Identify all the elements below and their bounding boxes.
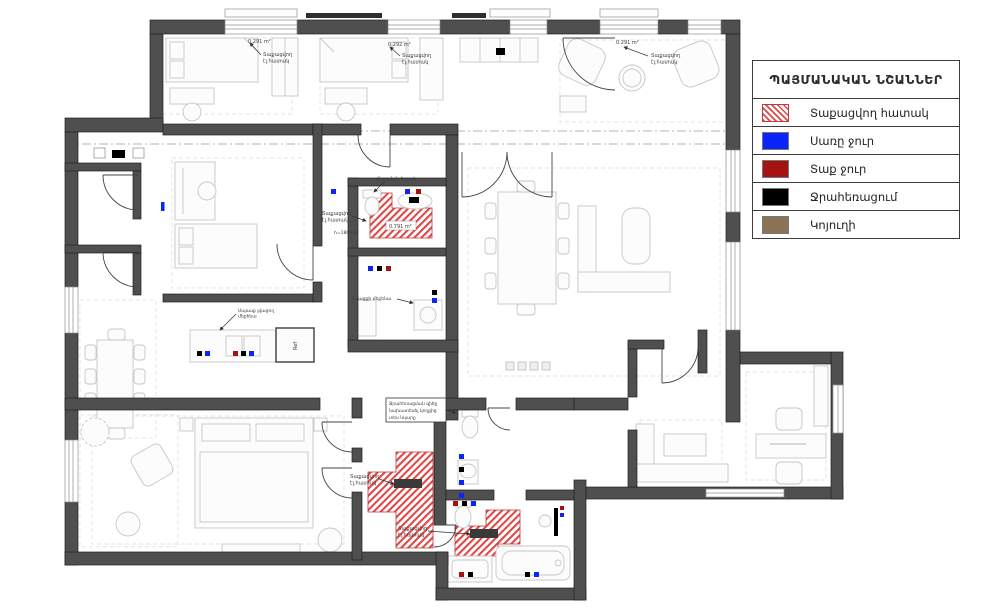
dishwasher-label: Սպասք լվացող մեքենա (238, 308, 276, 320)
hot-water-marker (560, 506, 564, 510)
balcony-slabs (306, 13, 486, 18)
legend-label: Տաք ջուր (810, 162, 866, 176)
drainage-marker (197, 351, 202, 356)
svg-text:տես նկարը: տես նկարը (389, 415, 416, 421)
svg-text:1.581 m²: 1.581 m² (472, 532, 493, 538)
hot-water-marker (233, 351, 238, 356)
bath-small-area-label: 0.791 m² (386, 221, 416, 230)
heated-floor-callout: Տաքացվող էլ.հատակ (398, 526, 429, 539)
drainage-marker (468, 572, 473, 577)
svg-text:Ջրահեռացման գիծը: Ջրահեռացման գիծը (389, 401, 438, 407)
cold-water-marker (432, 298, 437, 303)
legend-label: Կոյուղի (810, 218, 856, 232)
drainage-marker (377, 266, 382, 271)
heated-floor-callout: Տաքացվող էլ.հատակ (263, 52, 294, 65)
room2-area-label: 0.292 m² (388, 42, 411, 48)
legend-title: ՊԱՅՄԱՆԱԿԱՆ ՆՇԱՆՆԵՐ (753, 61, 959, 99)
drainage-marker (432, 290, 437, 295)
cold-water-marker (534, 572, 539, 577)
room1-area-label: 0.291 m² (248, 39, 271, 45)
drainage-marker (241, 351, 246, 356)
drainage-marker (409, 197, 419, 203)
lounge-furniture (460, 35, 722, 112)
cold-water-marker (405, 189, 410, 194)
living-furniture (485, 181, 670, 315)
legend-label: Տաքացվող հատակ (810, 106, 929, 120)
shower-column (554, 508, 558, 536)
room3-area-label: 0.291 m² (616, 40, 639, 46)
legend-row-hot-water: Տաք ջուր (753, 155, 959, 183)
floor-plan-page: 0.291 m² 0.292 m² 0.291 m² Տաքացվող էլ.հ… (0, 0, 1000, 608)
legend: ՊԱՅՄԱՆԱԿԱՆ ՆՇԱՆՆԵՐ Տաքացվող հատակ Սառը ջ… (752, 60, 960, 239)
bedroom3-furniture (175, 162, 257, 268)
hall-area-label: 4.505 m² (394, 479, 422, 488)
cold-water-marker (161, 202, 165, 211)
closet-black-box (112, 150, 125, 158)
cold-water-marker (331, 189, 336, 194)
cold-water-marker (459, 493, 464, 498)
legend-row-sewer: Կոյուղի (753, 211, 959, 238)
drainage-marker (525, 572, 530, 577)
drainage-marker (459, 467, 464, 472)
cold-water-marker (471, 501, 476, 506)
cold-water-marker (459, 454, 464, 459)
legend-label: Սառը ջուր (810, 134, 874, 148)
hot-water-swatch (762, 160, 789, 178)
cold-water-swatch (762, 132, 789, 150)
bath-big-area-label: 1.581 m² (470, 529, 498, 538)
vent-label: Ոռոգման ծորակ (377, 176, 416, 182)
heated-floor-callout: Տաքացվող էլ.հատակ (322, 211, 353, 224)
sewer-swatch (762, 216, 789, 234)
hot-water-marker (453, 501, 458, 506)
fridge-label: Ref (293, 342, 299, 350)
cold-water-marker (459, 480, 464, 485)
svg-text:0.791 m²: 0.791 m² (389, 224, 412, 230)
hot-water-marker (386, 266, 391, 271)
heated-floor-callout: Տաքացվող էլ.հատակ (402, 53, 433, 66)
tv-marker (496, 48, 505, 55)
legend-row-cold-water: Սառը ջուր (753, 127, 959, 155)
drainage-marker (462, 501, 467, 506)
cold-water-marker (205, 351, 210, 356)
drainage-swatch (762, 188, 789, 206)
cold-water-marker (368, 266, 373, 271)
washing-machine-label: Լվացքի մեքենա (353, 296, 391, 302)
svg-text:4.505 m²: 4.505 m² (396, 482, 417, 488)
bedroom1-furniture (166, 38, 298, 121)
cold-water-marker (249, 351, 254, 356)
heated-floor-swatch (762, 104, 789, 122)
note-box: Ջրահեռացման գիծը նախատեսել կողքից տես նկ… (386, 398, 446, 422)
hot-water-marker (459, 572, 464, 577)
bedroom2-furniture (320, 38, 443, 121)
legend-label: Ջրահեռացում (810, 190, 897, 204)
legend-row-heated-floor: Տաքացվող հատակ (753, 99, 959, 127)
cold-water-marker (560, 513, 564, 517)
heated-floor-callout: Տաքացվող էլ.հատակ (350, 474, 381, 487)
hot-water-marker (416, 189, 421, 194)
legend-row-drainage: Ջրահեռացում (753, 183, 959, 211)
heated-floor-callout: Տաքացվող էլ.հատակ (651, 53, 682, 66)
svg-text:նախատեսել կողքից: նախատեսել կողքից (388, 408, 437, 414)
height-label: h=1800մմ (334, 230, 358, 236)
